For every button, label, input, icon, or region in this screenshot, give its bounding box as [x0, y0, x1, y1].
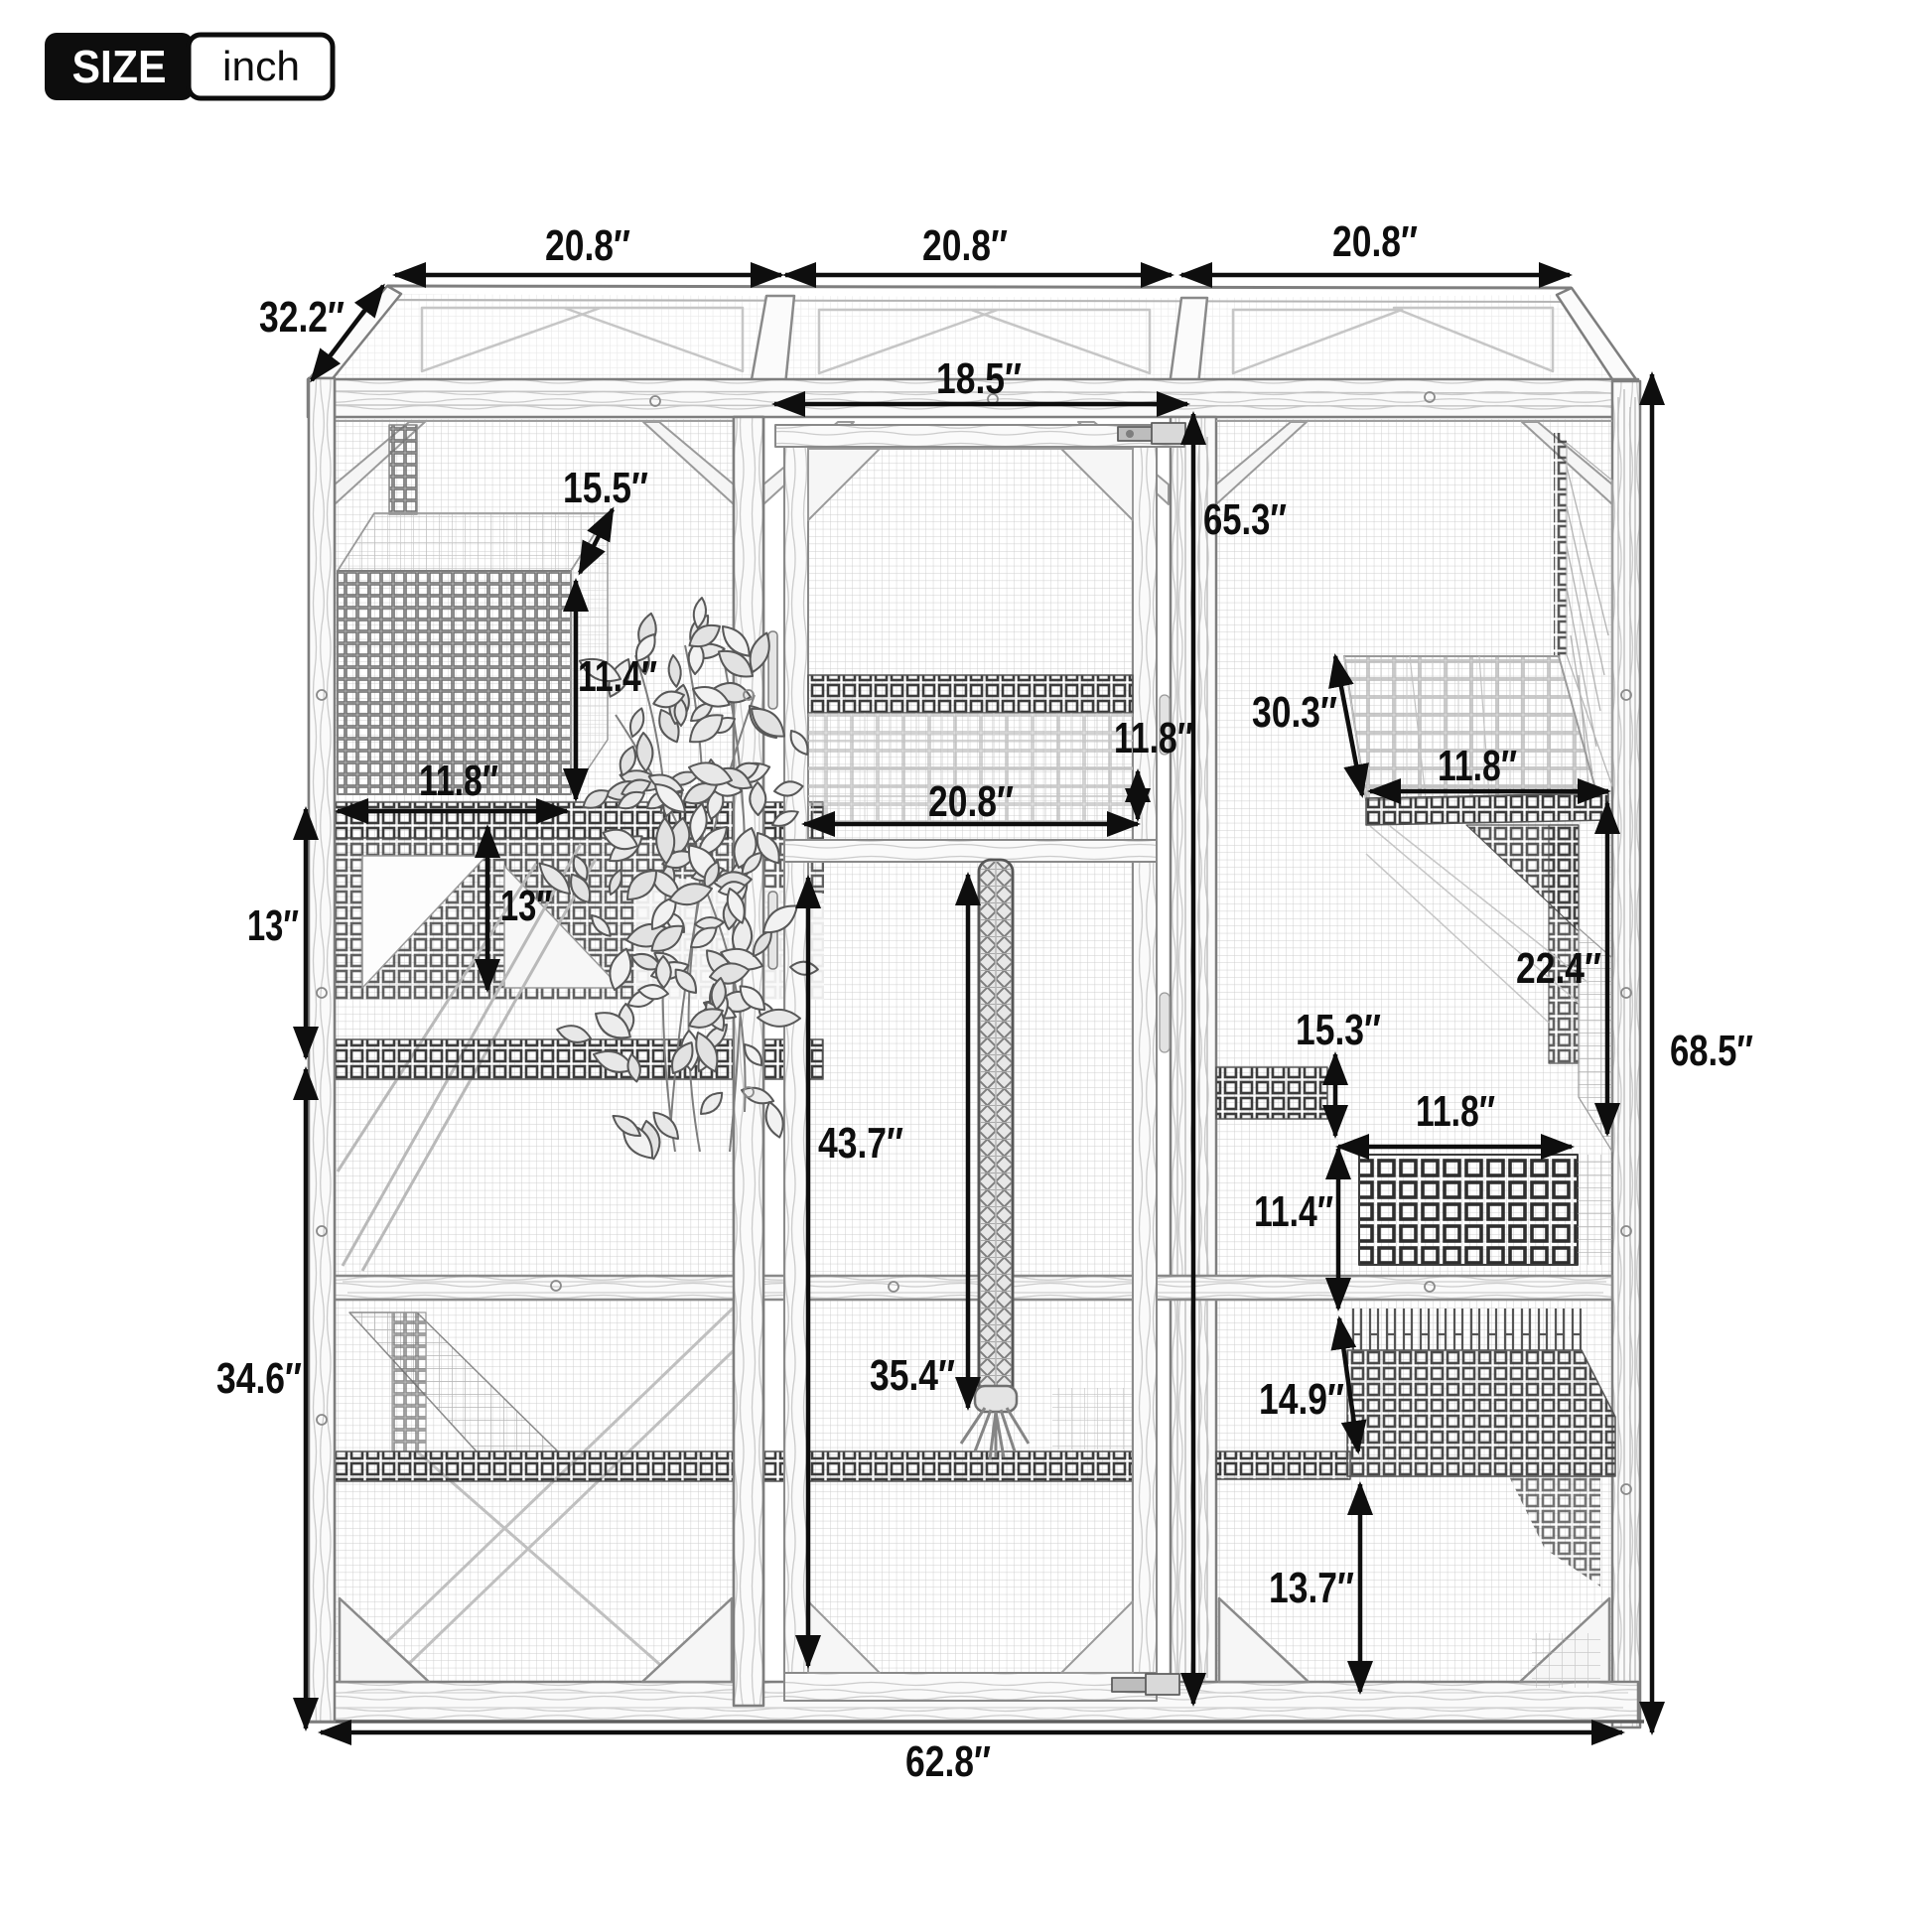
svg-text:32.2″: 32.2″	[259, 293, 345, 342]
svg-text:34.6″: 34.6″	[216, 1354, 302, 1403]
svg-text:11.8″: 11.8″	[1416, 1087, 1495, 1136]
svg-text:15.3″: 15.3″	[1296, 1006, 1381, 1054]
svg-text:15.5″: 15.5″	[563, 464, 648, 512]
svg-text:11.8″: 11.8″	[419, 757, 498, 805]
svg-text:11.8″: 11.8″	[1438, 742, 1517, 790]
svg-text:22.4″: 22.4″	[1516, 944, 1601, 993]
svg-text:68.5″: 68.5″	[1670, 1027, 1753, 1075]
svg-text:65.3″: 65.3″	[1203, 495, 1287, 544]
svg-text:14.9″: 14.9″	[1259, 1375, 1344, 1424]
svg-text:43.7″: 43.7″	[818, 1119, 903, 1168]
svg-text:35.4″: 35.4″	[870, 1351, 955, 1400]
svg-text:inch: inch	[222, 43, 300, 89]
svg-text:11.4″: 11.4″	[1254, 1187, 1333, 1236]
svg-text:20.8″: 20.8″	[928, 777, 1014, 826]
svg-text:13.7″: 13.7″	[1269, 1564, 1354, 1612]
svg-text:11.4″: 11.4″	[578, 652, 657, 701]
svg-text:13″: 13″	[500, 882, 552, 930]
svg-text:SIZE: SIZE	[72, 41, 167, 92]
svg-text:30.3″: 30.3″	[1252, 688, 1337, 737]
svg-text:11.8″: 11.8″	[1114, 714, 1193, 762]
svg-text:20.8″: 20.8″	[545, 221, 630, 270]
svg-text:13″: 13″	[247, 901, 299, 950]
svg-text:20.8″: 20.8″	[1332, 217, 1418, 266]
svg-text:18.5″: 18.5″	[936, 354, 1022, 403]
svg-text:20.8″: 20.8″	[922, 221, 1008, 270]
svg-text:62.8″: 62.8″	[905, 1737, 991, 1786]
